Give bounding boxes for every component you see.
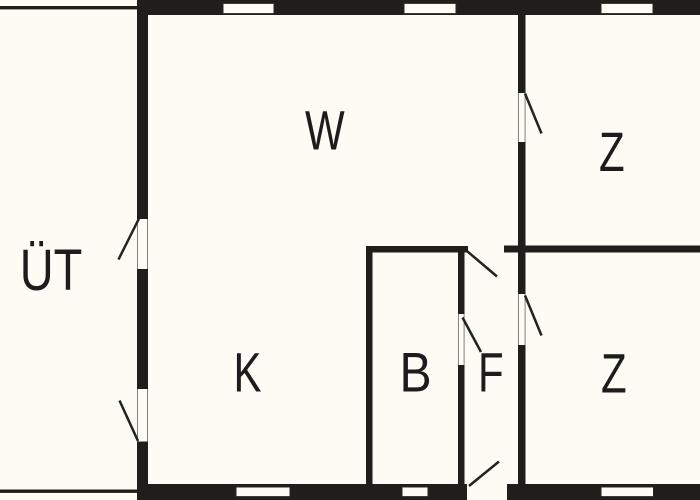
svg-text:K: K — [234, 342, 262, 404]
svg-text:Z: Z — [599, 121, 625, 183]
svg-text:Z: Z — [601, 343, 627, 405]
svg-text:ÜT: ÜT — [20, 238, 83, 303]
svg-text:F: F — [478, 342, 504, 404]
svg-text:W: W — [305, 100, 345, 162]
svg-text:B: B — [399, 342, 431, 404]
